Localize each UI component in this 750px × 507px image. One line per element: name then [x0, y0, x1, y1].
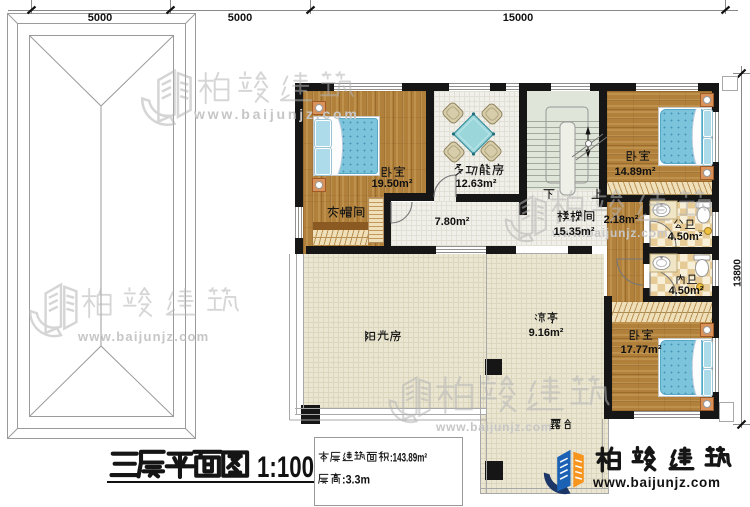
svg-text:www.baijunjz.com: www.baijunjz.com: [592, 475, 721, 490]
svg-text:www.baijunjz.com: www.baijunjz.com: [77, 329, 209, 344]
svg-text::3.3m: :3.3m: [342, 473, 370, 487]
svg-text:1:100: 1:100: [257, 451, 314, 484]
svg-text:www.baijunjz.com: www.baijunjz.com: [193, 106, 360, 122]
svg-text::143.89m²: :143.89m²: [390, 451, 427, 465]
svg-text:www.baijunjz.com: www.baijunjz.com: [435, 420, 552, 434]
